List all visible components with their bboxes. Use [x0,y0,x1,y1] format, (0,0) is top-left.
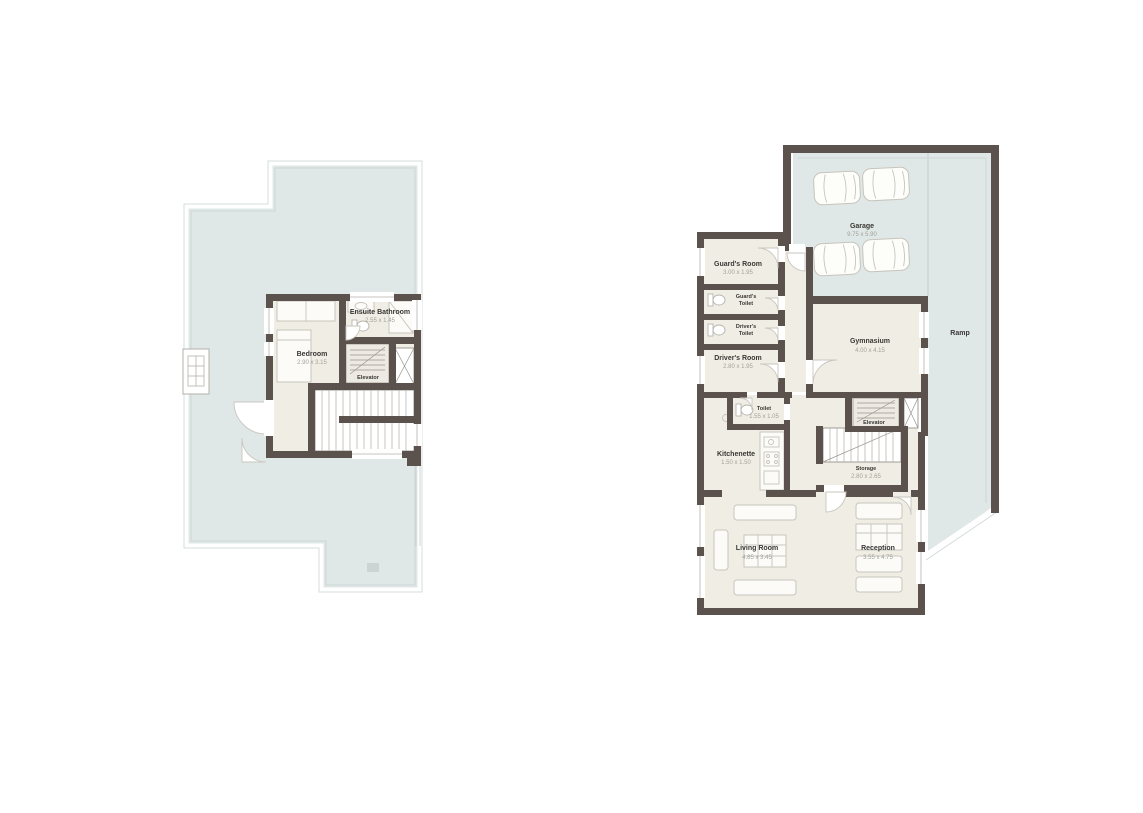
storage-dims: 2.80 x 2.65 [851,474,881,480]
kitchenette-label: Kitchenette [717,451,755,458]
toilet-label: Toilet [757,406,771,412]
bedroom-label: Bedroom [297,351,328,358]
stairs-ground [823,428,901,462]
shower [389,301,413,333]
terrace-mark [367,563,379,572]
storage-label: Storage [856,466,876,472]
shaft-ground [904,398,918,428]
living-room-dims: 4.85 x 3.45 [742,555,772,561]
kitchenette-dims: 1.50 x 1.50 [721,460,751,466]
gymnasium-label: Gymnasium [850,338,890,345]
floor-plans-canvas: Bedroom 2.90 x 3.15 Ensuite Bathroom 2.5… [0,0,1143,813]
guards-toilet-label-2: Toilet [739,301,753,307]
garage-label: Garage [850,223,874,230]
kitchen-counter [760,432,784,490]
terrace-fixture [183,349,209,394]
corridor-floor [785,251,806,392]
drivers-toilet-label-2: Toilet [739,331,753,337]
guards-toilet-label-1: Guard's [736,294,757,300]
ensuite-label: Ensuite Bathroom [350,309,410,316]
gymnasium-dims: 4.00 x 4.15 [855,348,885,354]
guards-room-dims: 3.00 x 1.95 [723,270,753,276]
ramp-label: Ramp [950,330,969,337]
garage-dims: 9.75 x 5.90 [847,232,877,238]
toilet-icon-drivers [708,324,725,336]
drivers-room-dims: 2.80 x 1.95 [723,364,753,370]
reception-dims: 3.55 x 4.75 [863,555,893,561]
elevator-upper-label: Elevator [357,375,380,381]
floor-plans-page: Bedroom 2.90 x 3.15 Ensuite Bathroom 2.5… [0,0,1143,813]
ground-floor-plan: Garage 9.75 x 5.90 Ramp Guard's Room 3.0… [695,145,999,615]
guards-room-label: Guard's Room [714,261,762,268]
toilet-icon-guards [708,294,725,306]
drivers-room-label: Driver's Room [714,355,762,362]
elevator-ground-label: Elevator [863,420,886,426]
reception-label: Reception [861,545,895,552]
shaft-upper [395,348,414,384]
drivers-toilet-label-1: Driver's [736,324,756,330]
toilet-dims: 1.55 x 1.05 [749,414,779,420]
stairs-upper [315,390,421,451]
bedroom-dims: 2.90 x 3.15 [297,360,327,366]
ensuite-dims: 2.55 x 1.45 [365,318,395,324]
wardrobe [277,301,335,321]
living-room-label: Living Room [736,545,778,552]
upper-floor-plan: Bedroom 2.90 x 3.15 Ensuite Bathroom 2.5… [183,161,422,592]
